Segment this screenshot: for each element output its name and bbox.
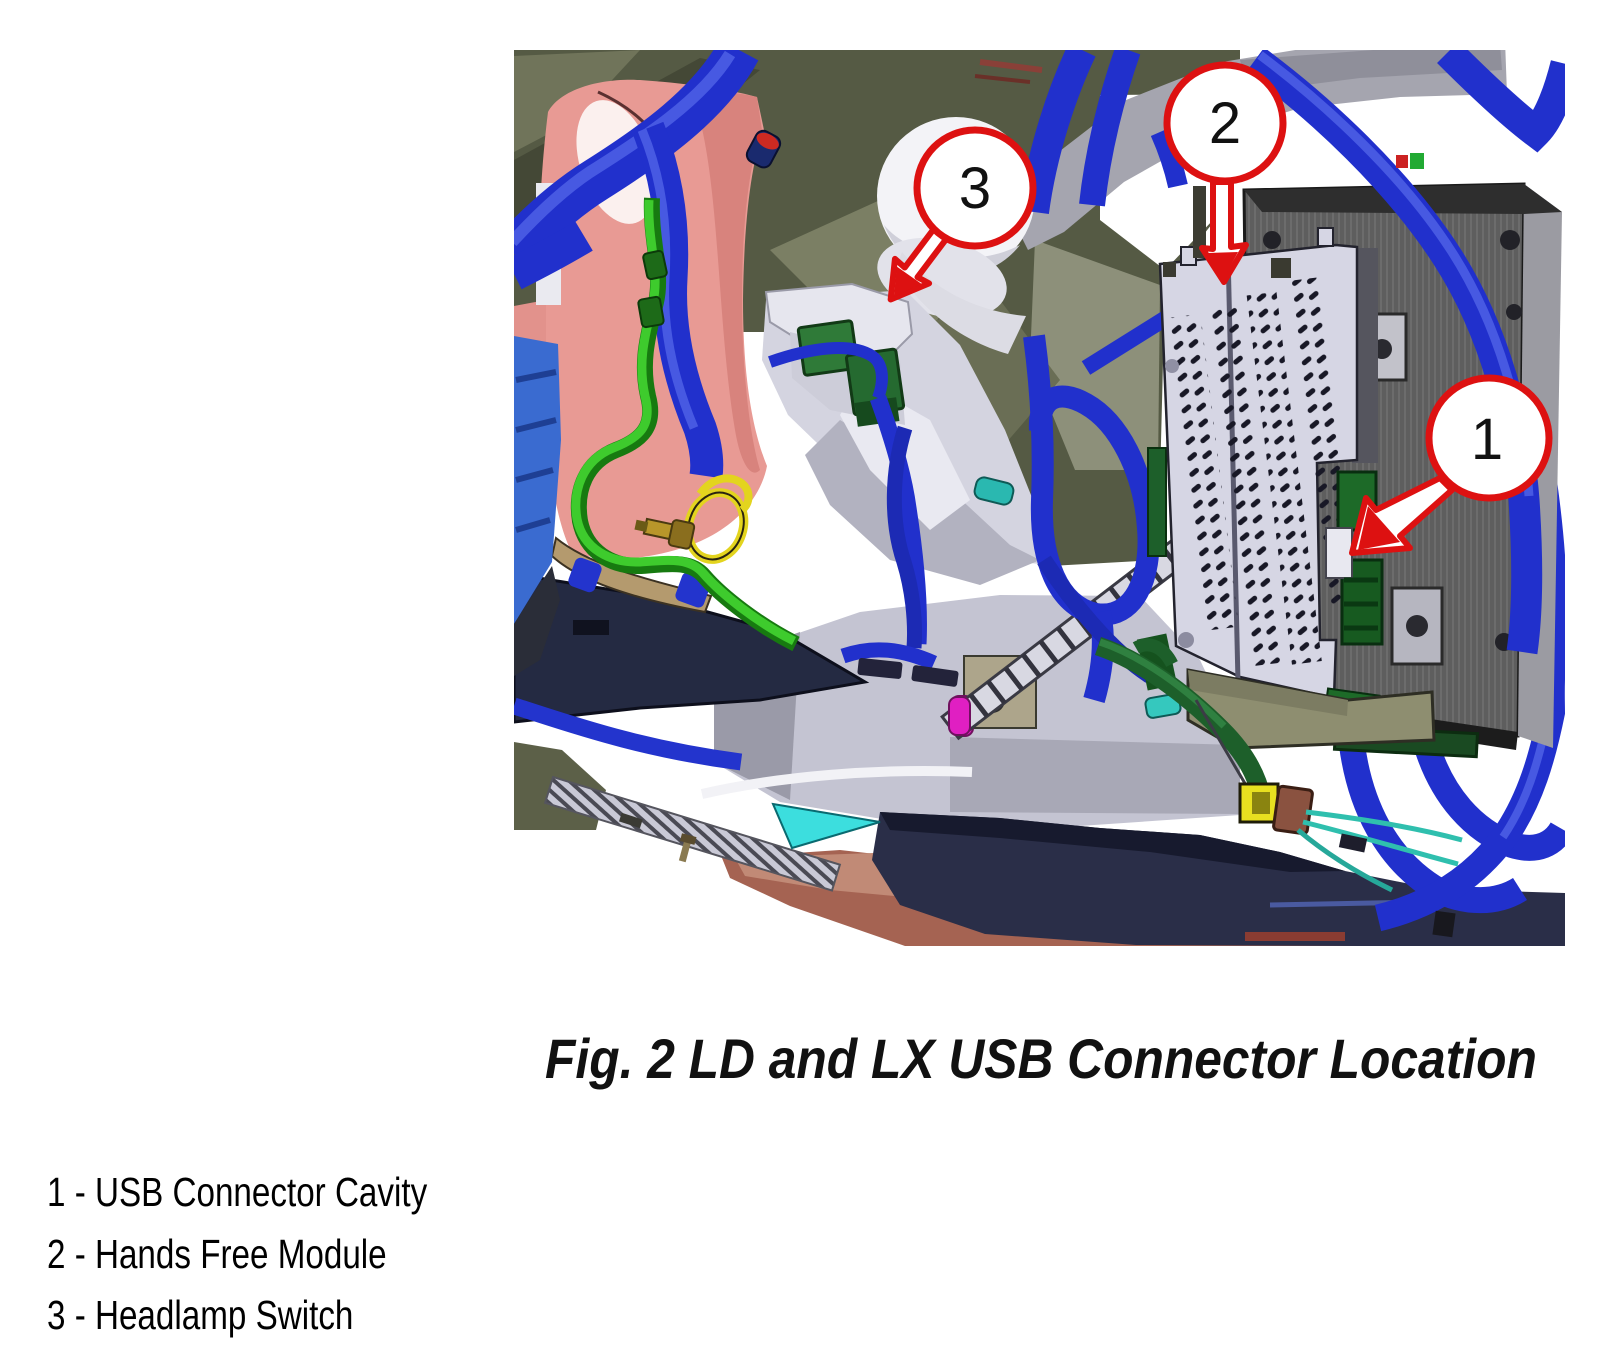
svg-text:1: 1 (1471, 407, 1503, 472)
svg-text:3: 3 (959, 156, 991, 221)
svg-text:2: 2 (1209, 91, 1241, 156)
